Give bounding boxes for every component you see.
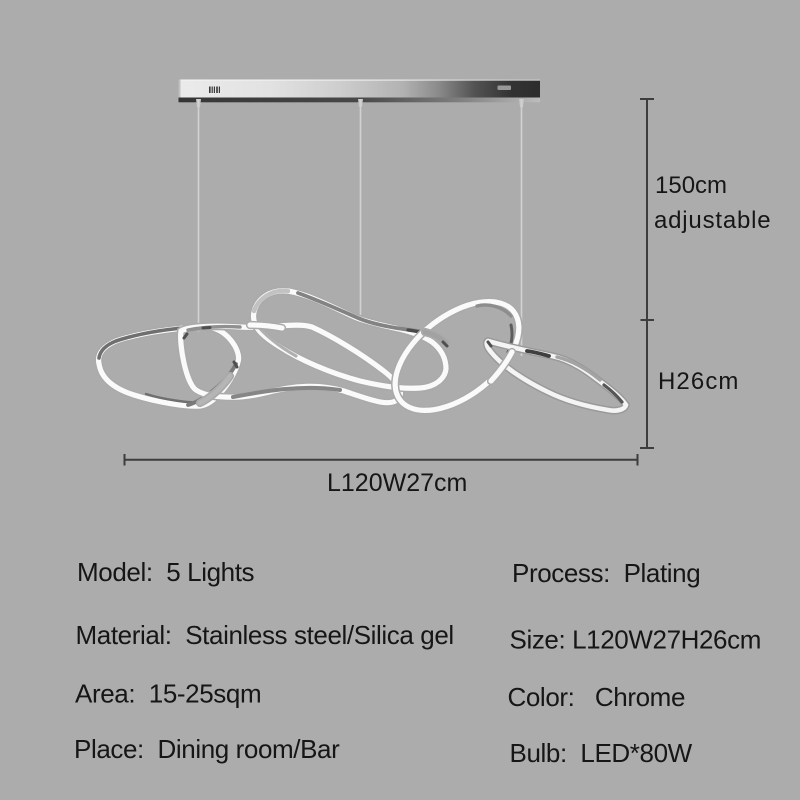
svg-text:150cm: 150cm (655, 172, 727, 199)
svg-text:Size: L120W27H26cm: Size: L120W27H26cm (510, 625, 761, 655)
svg-text:Material: Stainless steel/Sil: Material: Stainless steel/Silica gel (76, 620, 454, 650)
svg-text:Color: Chrome: Color: Chrome (508, 682, 686, 712)
svg-text:H26cm: H26cm (658, 368, 740, 395)
svg-text:L120W27cm: L120W27cm (327, 469, 467, 497)
svg-text:Process: Plating: Process: Plating (512, 558, 700, 588)
svg-text:Model: 5 Lights: Model: 5 Lights (77, 557, 255, 587)
svg-text:Place: Dining room/Bar: Place: Dining room/Bar (74, 734, 340, 764)
svg-text:Area: 15-25sqm: Area: 15-25sqm (75, 679, 261, 709)
svg-text:adjustable: adjustable (654, 207, 771, 234)
svg-text:Bulb: LED*80W: Bulb: LED*80W (510, 738, 693, 768)
